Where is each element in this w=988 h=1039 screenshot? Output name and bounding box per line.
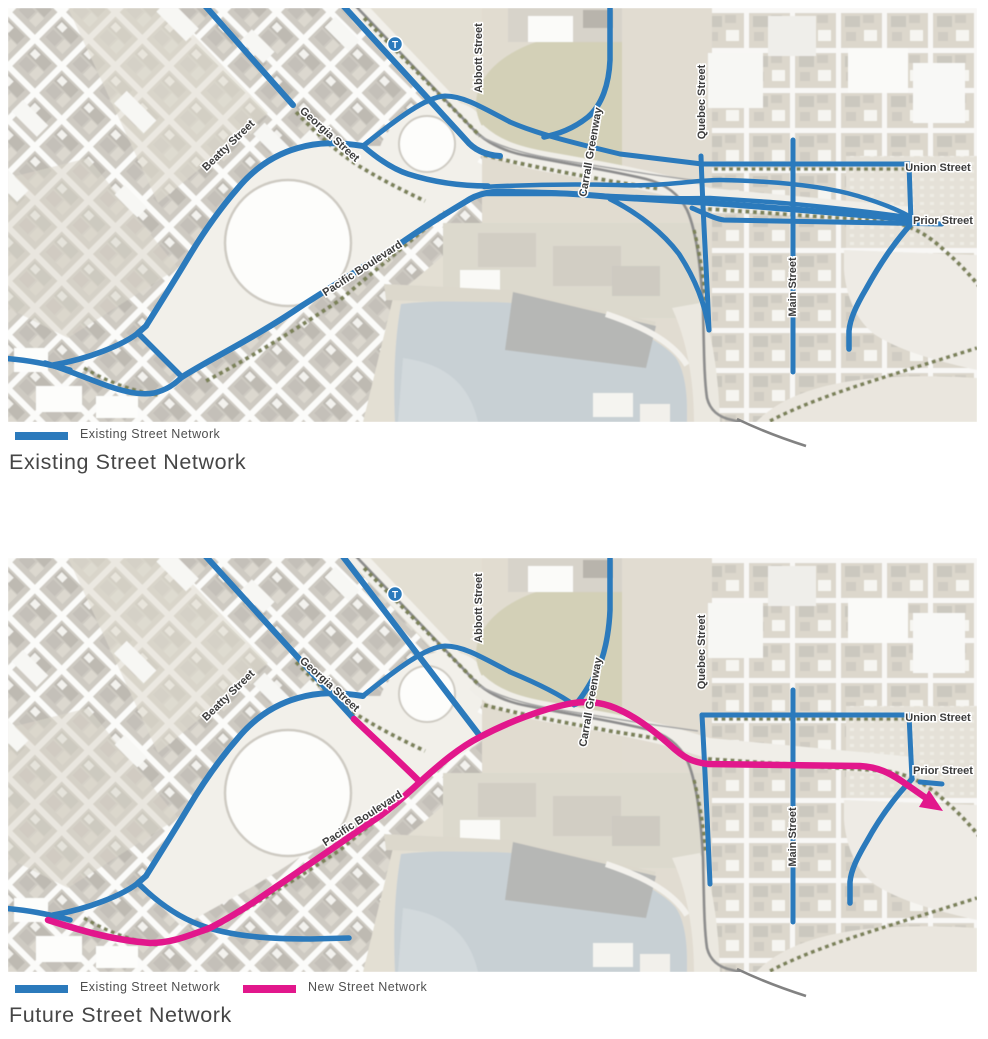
svg-text:T: T xyxy=(392,590,398,601)
svg-text:T: T xyxy=(392,40,398,51)
